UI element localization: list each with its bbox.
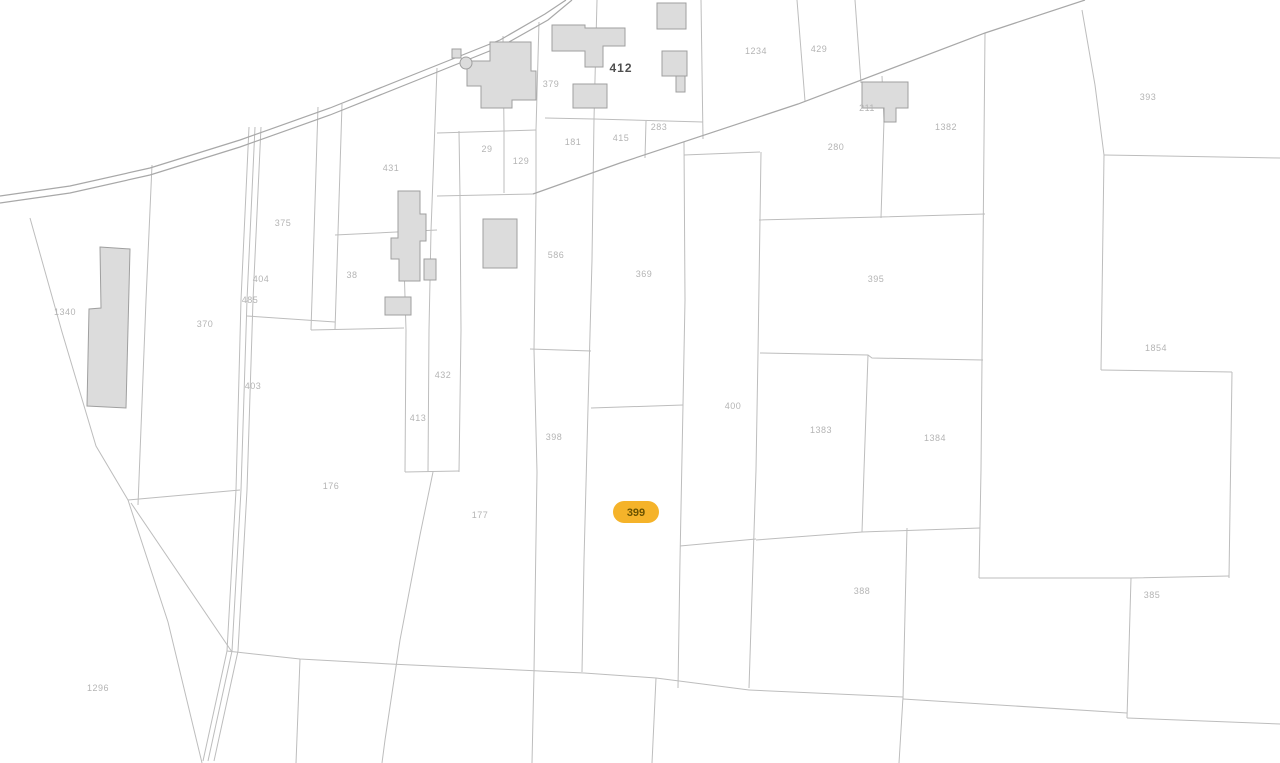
parcel-boundary-line	[701, 0, 703, 139]
parcel-boundary-line	[247, 316, 335, 322]
parcel-label-dark: 412	[609, 61, 632, 75]
parcel-boundary-line	[138, 165, 152, 505]
roads-layer	[0, 0, 1085, 203]
parcel-boundary-line	[903, 528, 907, 699]
parcel-boundary-line	[530, 349, 591, 351]
building-footprint	[662, 51, 687, 76]
parcel-label: 280	[828, 142, 845, 152]
tank-circle	[460, 57, 472, 69]
parcel-label: 395	[868, 274, 885, 284]
parcel-label: 283	[651, 122, 668, 132]
building-footprint	[385, 297, 411, 315]
parcel-boundary-line	[862, 355, 868, 532]
parcel-boundary-line	[405, 471, 459, 472]
parcel-boundary-line	[311, 328, 404, 330]
parcel-boundary-line	[1127, 578, 1131, 718]
parcel-boundary-line	[979, 33, 985, 578]
parcel-boundary-line	[899, 697, 903, 763]
parcel-boundary-line	[459, 131, 461, 472]
parcel-boundary-line	[128, 490, 240, 500]
parcel-label: 415	[613, 133, 630, 143]
parcel-boundary-line	[208, 127, 255, 761]
selected-parcel-number[interactable]: 399	[627, 507, 645, 519]
building-footprint	[424, 259, 436, 280]
parcel-boundary-line	[131, 503, 232, 652]
building-footprint	[676, 76, 685, 92]
selected-parcel-badge[interactable]: 399	[613, 501, 659, 523]
building-footprint	[391, 191, 426, 281]
parcel-label: 393	[1140, 92, 1157, 102]
parcel-boundary-line	[1104, 155, 1280, 158]
parcel-boundary-line	[749, 152, 761, 688]
parcel-label: 429	[811, 44, 828, 54]
building-footprint	[862, 82, 908, 122]
parcel-label: 400	[725, 401, 742, 411]
parcel-label: 211	[859, 103, 875, 113]
parcel-boundary-line	[979, 576, 1229, 578]
parcel-boundary-line	[1127, 718, 1280, 724]
parcel-boundary-line	[797, 0, 805, 101]
buildings-layer	[87, 3, 908, 408]
parcel-label: 385	[1144, 590, 1161, 600]
parcel-boundary-line	[227, 651, 749, 690]
parcel-boundary-line	[1082, 10, 1104, 155]
parcel-boundary-line	[1229, 372, 1232, 578]
parcel-label: 129	[513, 156, 530, 166]
parcel-label: 413	[410, 413, 427, 423]
parcel-label: 176	[323, 481, 340, 491]
parcel-boundary-line	[749, 690, 903, 697]
parcel-label: 375	[275, 218, 292, 228]
parcel-boundary-line	[759, 214, 985, 220]
parcel-boundary-line	[437, 130, 536, 133]
parcel-label: 1296	[87, 683, 109, 693]
building-footprint	[657, 3, 686, 29]
parcel-label: 1384	[924, 433, 946, 443]
parcel-label: 586	[548, 250, 565, 260]
parcel-label: 388	[854, 586, 871, 596]
parcel-label: 1340	[54, 307, 76, 317]
parcel-boundary-line	[756, 528, 980, 540]
parcel-label: 1382	[935, 122, 957, 132]
parcel-boundary-line	[652, 678, 656, 763]
building-footprint	[87, 247, 130, 408]
parcel-label: 177	[472, 510, 489, 520]
parcel-label: 1854	[1145, 343, 1167, 353]
parcel-map-svg: 1340370375404485403431384324131761772912…	[0, 0, 1280, 763]
parcel-label: 181	[565, 137, 582, 147]
parcel-label: 38	[346, 270, 357, 280]
parcel-boundaries-layer	[30, 0, 1280, 763]
parcel-boundary-line	[382, 472, 433, 763]
parcel-label: 370	[197, 319, 214, 329]
parcel-label: 403	[245, 381, 262, 391]
parcel-boundary-line	[296, 659, 300, 763]
building-footprint	[573, 84, 607, 108]
parcel-boundary-line	[684, 152, 760, 155]
parcel-boundary-line	[903, 699, 1127, 713]
parcel-boundary-line	[680, 539, 756, 546]
parcel-boundary-line	[594, 119, 703, 122]
parcel-boundary-line	[582, 119, 594, 672]
building-footprint	[467, 42, 536, 108]
parcel-label: 431	[383, 163, 400, 173]
building-footprint	[483, 219, 517, 268]
parcel-boundary-line	[437, 194, 533, 196]
parcel-boundary-line	[545, 118, 594, 119]
parcel-boundary-line	[760, 353, 983, 360]
parcel-label: 1383	[810, 425, 832, 435]
parcel-labels-layer: 1340370375404485403431384324131761772912…	[54, 44, 1167, 693]
parcel-boundary-line	[645, 121, 646, 158]
parcel-label: 379	[543, 79, 560, 89]
parcel-label: 398	[546, 432, 563, 442]
parcel-boundary-line	[855, 0, 861, 83]
parcel-boundary-line	[1101, 155, 1104, 370]
parcel-boundary-line	[678, 142, 685, 688]
cadastral-map-canvas[interactable]: 1340370375404485403431384324131761772912…	[0, 0, 1280, 763]
parcel-label: 485	[242, 295, 259, 305]
parcel-boundary-line	[1101, 370, 1232, 372]
parcel-boundary-line	[591, 405, 683, 408]
parcel-label: 404	[253, 274, 270, 284]
parcel-boundary-line	[532, 22, 539, 763]
parcel-boundary-line	[311, 107, 318, 330]
parcel-label: 29	[481, 144, 492, 154]
parcel-boundary-line	[335, 104, 342, 330]
building-footprint	[452, 49, 461, 58]
parcel-label: 369	[636, 269, 653, 279]
parcel-label: 1234	[745, 46, 767, 56]
parcel-label: 432	[435, 370, 452, 380]
